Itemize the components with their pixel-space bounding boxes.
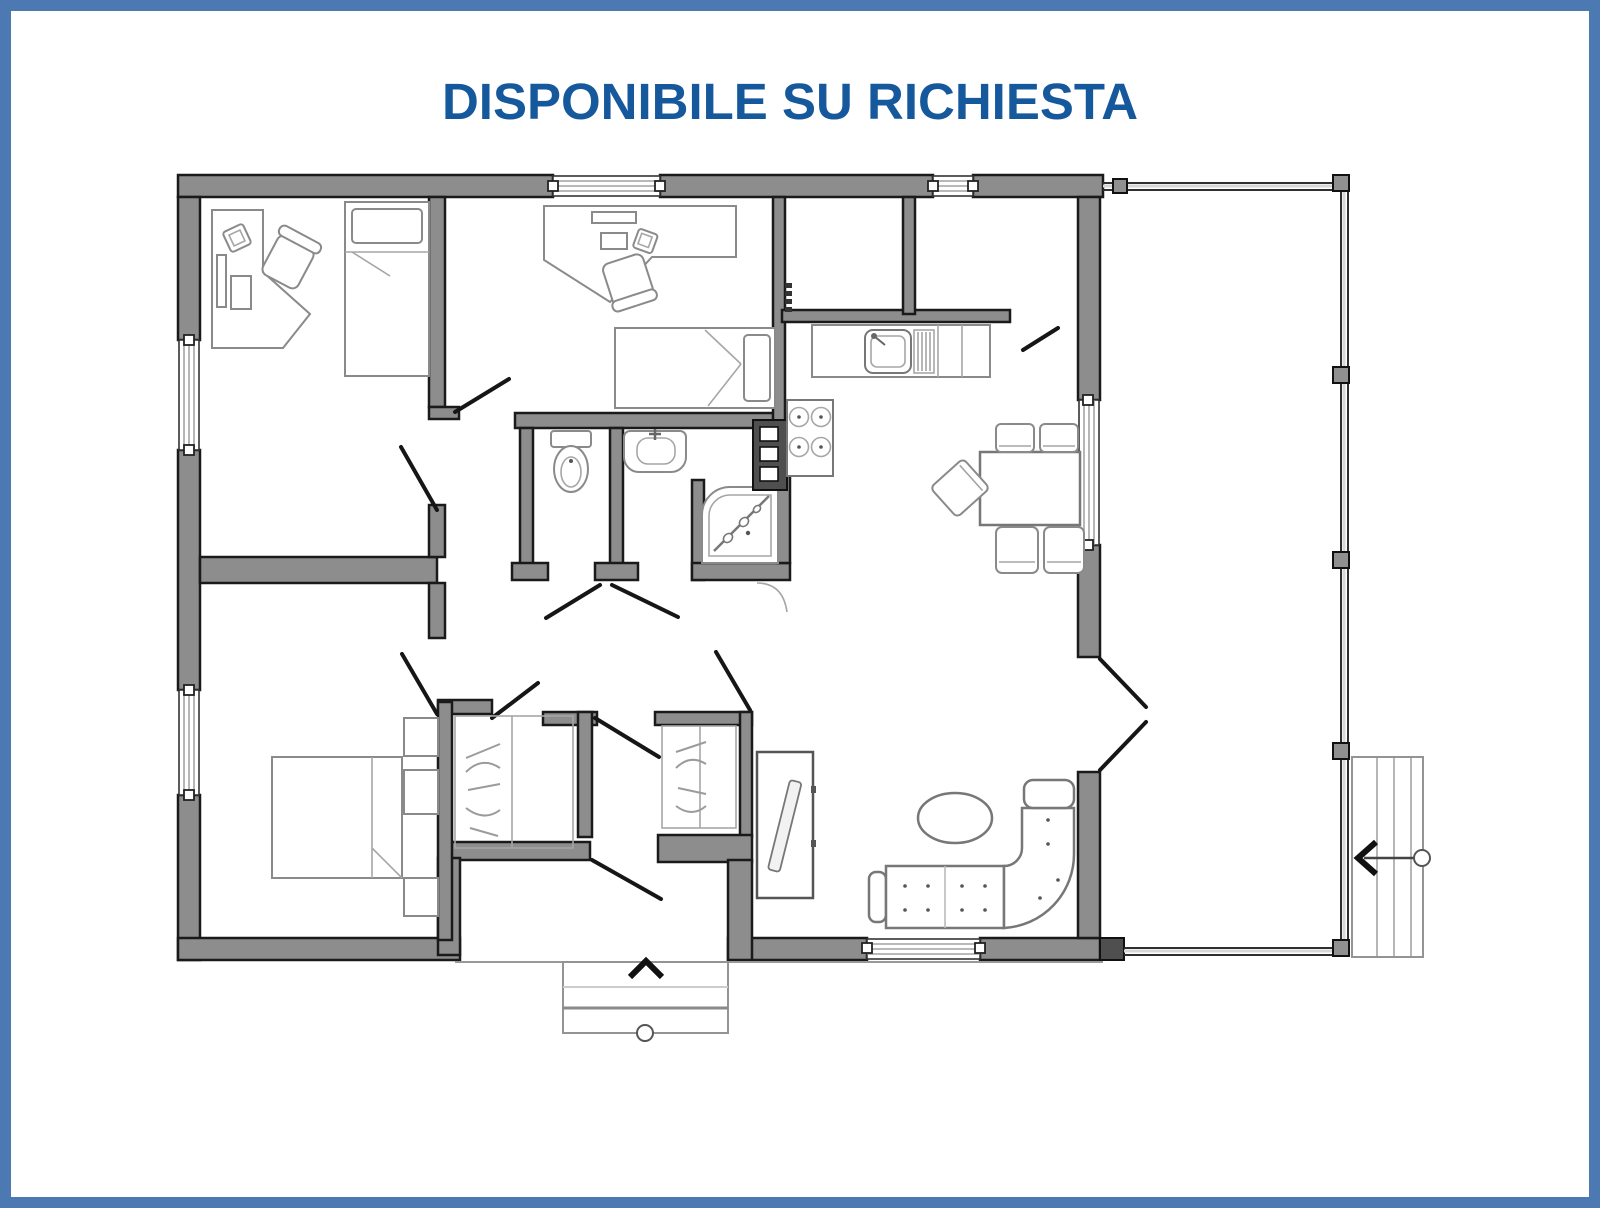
door-swing: [1100, 722, 1146, 770]
porch-post: [1333, 367, 1349, 383]
porch-post: [1333, 940, 1349, 956]
dining-table: [980, 452, 1080, 525]
window: [1079, 395, 1099, 550]
porch-post: [1333, 743, 1349, 759]
dining-chair: [996, 424, 1034, 452]
door-swing: [1100, 659, 1146, 707]
dining-chair: [1044, 527, 1084, 573]
toilet-symbol: [551, 431, 591, 492]
door-swing: [455, 379, 509, 412]
wardrobe-1: [455, 716, 573, 848]
counter-edge: [757, 583, 787, 612]
boiler-column: [753, 420, 787, 490]
single-bed: [615, 328, 775, 408]
washbasin-symbol: [624, 429, 686, 472]
porch-post: [1333, 552, 1349, 568]
door-swing: [612, 585, 678, 617]
room-kids-furniture: [544, 206, 775, 408]
tv-cabinet: [757, 752, 816, 898]
entry-steps: [455, 961, 1103, 1041]
window: [179, 685, 199, 800]
single-bed: [345, 202, 429, 376]
window: [862, 939, 985, 959]
nightstand: [404, 878, 438, 916]
kitchen-sink-counter: [812, 325, 990, 377]
window: [928, 176, 978, 196]
double-bed: [272, 757, 402, 878]
door-swing: [1023, 328, 1058, 350]
door-swing: [592, 860, 661, 899]
bedroom-master-furniture: [272, 718, 438, 916]
window: [179, 335, 199, 455]
shower-symbol: [702, 487, 778, 563]
porch-post: [1333, 175, 1349, 191]
wardrobe-2: [662, 726, 736, 828]
bathroom-fixtures: [551, 429, 778, 563]
coffee-table-oval: [918, 793, 992, 843]
door-swing: [401, 447, 437, 510]
room-office-furniture: [212, 202, 429, 376]
porch-railing: [1103, 175, 1349, 956]
dining-chair: [996, 527, 1038, 573]
floor-plan: [0, 0, 1600, 1208]
porch-post: [1113, 179, 1127, 193]
nightstand: [404, 718, 438, 756]
window: [548, 176, 665, 196]
dining-set: [930, 424, 1084, 573]
living-room-furniture: [757, 752, 1074, 928]
door-swing: [716, 652, 750, 710]
exterior-stairs: [1352, 757, 1430, 957]
stove-symbol: [787, 400, 833, 476]
door-swing: [402, 654, 437, 714]
door-swing: [595, 718, 659, 757]
door-swing: [492, 683, 538, 718]
wardrobes: [455, 716, 736, 848]
door-swing: [546, 585, 600, 618]
headboard-shelf: [404, 770, 438, 814]
corner-post: [1100, 938, 1124, 960]
dining-chair: [1040, 424, 1078, 452]
